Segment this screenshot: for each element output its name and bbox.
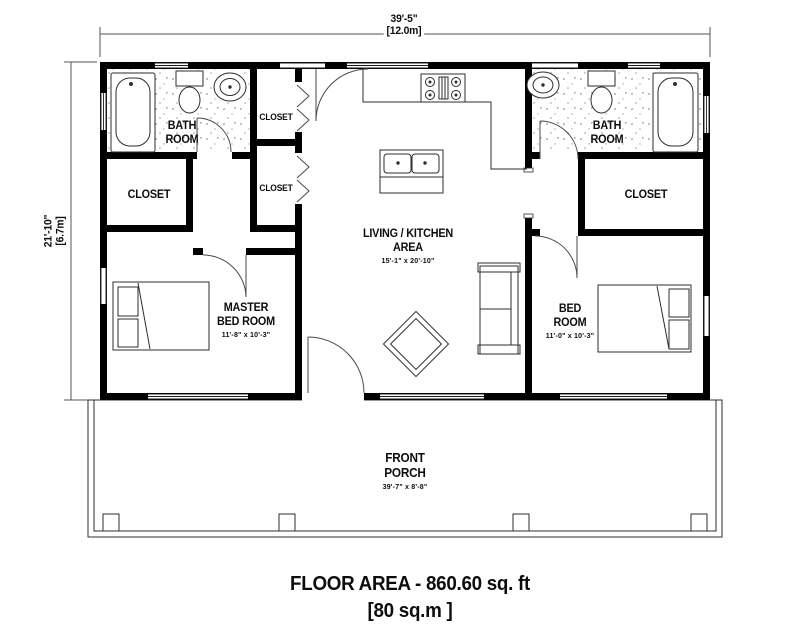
opening-jamb bbox=[524, 214, 533, 218]
sink-right bbox=[527, 72, 559, 98]
armchair bbox=[383, 311, 448, 376]
overall-depth-ft: 21'-10" bbox=[43, 215, 55, 248]
window bbox=[280, 63, 325, 69]
window bbox=[148, 394, 248, 400]
island-sink bbox=[380, 150, 443, 193]
room-label-bedroom: BED ROOM 11'-0" x 10'-3" bbox=[546, 303, 595, 341]
overall-depth-dimension: 21'-10" [6.7m] bbox=[43, 212, 66, 250]
porch-post bbox=[279, 514, 295, 531]
master-bed bbox=[113, 282, 209, 350]
floor-plan-canvas: 39'-5" [12.0m] 21'-10" [6.7m] BATH ROOM … bbox=[0, 0, 794, 635]
window bbox=[101, 93, 107, 130]
floor-plan-drawing bbox=[0, 0, 794, 635]
front-porch-size: 39'-7" x 8'-8" bbox=[383, 483, 428, 492]
front-door-opening bbox=[302, 393, 364, 401]
bed bbox=[598, 285, 691, 352]
bathtub-right bbox=[653, 73, 698, 152]
overall-width-m: [12.0m] bbox=[387, 26, 422, 38]
bedroom-door bbox=[535, 236, 577, 278]
room-label-living-kitchen: LIVING / KITCHEN AREA 15'-1" x 20'-10" bbox=[363, 228, 453, 266]
room-label-bath-left: BATH ROOM bbox=[166, 120, 199, 147]
master-bedroom-size: 11'-8" x 10'-3" bbox=[217, 331, 275, 340]
window bbox=[704, 96, 710, 133]
window bbox=[155, 63, 188, 69]
sofa bbox=[478, 263, 520, 354]
porch-post bbox=[103, 514, 119, 531]
beds bbox=[113, 282, 691, 352]
stove bbox=[421, 74, 465, 102]
room-label-front-porch: FRONT PORCH 39'-7" x 8'-8" bbox=[383, 451, 428, 491]
window bbox=[347, 63, 428, 69]
bedroom-size: 11'-0" x 10'-3" bbox=[546, 332, 595, 341]
floor-area-imperial: FLOOR AREA - 860.60 sq. ft bbox=[290, 571, 530, 598]
window bbox=[628, 63, 660, 69]
plan-title: FLOOR AREA - 860.60 sq. ft [80 sq.m ] bbox=[290, 571, 530, 625]
sink-left bbox=[214, 73, 246, 101]
bathtub-left bbox=[111, 73, 155, 152]
room-label-bath-right: BATH ROOM bbox=[591, 120, 624, 147]
living-kitchen-size: 15'-1" x 20'-10" bbox=[363, 257, 453, 266]
window bbox=[380, 394, 484, 400]
porch-post bbox=[513, 514, 529, 531]
overall-depth-m: [6.7m] bbox=[55, 215, 67, 248]
room-label-master-bedroom: MASTER BED ROOM 11'-8" x 10'-3" bbox=[217, 302, 275, 340]
room-label-closet-right: CLOSET bbox=[625, 189, 668, 203]
hall-left-door bbox=[316, 69, 368, 121]
overall-width-dimension: 39'-5" [12.0m] bbox=[384, 14, 425, 37]
kitchen bbox=[363, 69, 527, 193]
window bbox=[101, 268, 107, 304]
living-furniture bbox=[383, 263, 520, 377]
front-door bbox=[308, 337, 364, 393]
room-label-closet-hall-top: CLOSET bbox=[259, 112, 292, 123]
window bbox=[560, 394, 667, 400]
overall-width-ft: 39'-5" bbox=[387, 14, 422, 26]
room-label-closet-hall-bottom: CLOSET bbox=[259, 183, 292, 194]
room-label-closet-left: CLOSET bbox=[128, 189, 171, 203]
window bbox=[532, 63, 578, 69]
window bbox=[704, 296, 710, 336]
porch-post bbox=[691, 514, 707, 531]
floor-area-metric: [80 sq.m ] bbox=[290, 598, 530, 625]
